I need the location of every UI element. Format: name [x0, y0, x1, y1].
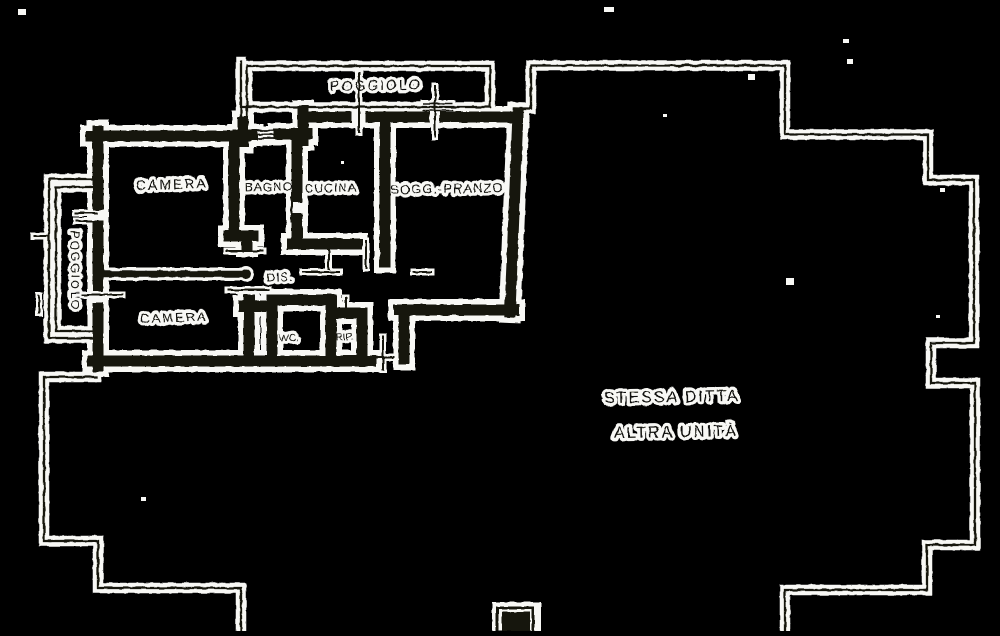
svg-text:RIP.: RIP.	[336, 332, 355, 344]
svg-text:POGGIOLO: POGGIOLO	[330, 76, 422, 94]
svg-text:ALTRA UNITÀ: ALTRA UNITÀ	[614, 421, 738, 442]
svg-text:STESSA DITTA: STESSA DITTA	[604, 388, 740, 407]
svg-text:CUCINA: CUCINA	[305, 181, 357, 196]
svg-text:POGGIOLO: POGGIOLO	[68, 231, 82, 312]
svg-text:CAMERA: CAMERA	[140, 309, 208, 326]
svg-text:DIS.: DIS.	[266, 270, 294, 285]
svg-text:CAMERA: CAMERA	[136, 175, 208, 193]
svg-text:SOGG.-PRANZO: SOGG.-PRANZO	[390, 180, 503, 197]
svg-text:WC.: WC.	[279, 333, 299, 345]
svg-text:BAGNO: BAGNO	[245, 180, 294, 195]
